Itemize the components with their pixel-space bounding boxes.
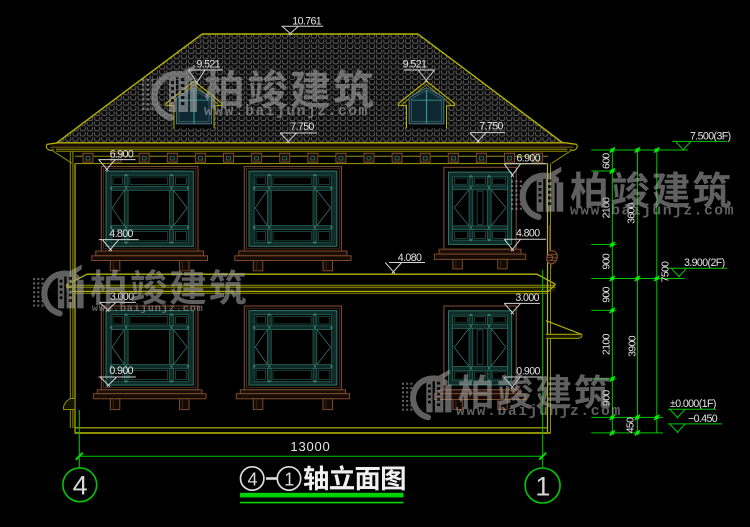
svg-text:3.900(2F): 3.900(2F) bbox=[684, 257, 725, 269]
svg-text:900: 900 bbox=[602, 253, 613, 269]
svg-text:4: 4 bbox=[247, 469, 257, 489]
svg-text:www.baijunjz.com: www.baijunjz.com bbox=[92, 303, 204, 315]
svg-text:3.000: 3.000 bbox=[515, 292, 539, 304]
svg-text:6.900: 6.900 bbox=[110, 148, 134, 160]
svg-text:450: 450 bbox=[625, 417, 636, 433]
svg-text:www.baijunjz.com: www.baijunjz.com bbox=[570, 203, 735, 219]
svg-text:www.baijunjz.com: www.baijunjz.com bbox=[456, 404, 622, 420]
svg-text:13000: 13000 bbox=[290, 439, 330, 454]
svg-text:6.900: 6.900 bbox=[517, 153, 541, 165]
svg-text:600: 600 bbox=[602, 153, 613, 169]
svg-text:900: 900 bbox=[602, 286, 613, 302]
svg-text:0.900: 0.900 bbox=[109, 365, 133, 377]
svg-text:9.521: 9.521 bbox=[403, 59, 427, 71]
svg-text:www.baijunjz.com: www.baijunjz.com bbox=[204, 104, 369, 120]
svg-text:7.500(3F): 7.500(3F) bbox=[690, 130, 731, 142]
svg-text:7500: 7500 bbox=[660, 261, 671, 283]
svg-text:1: 1 bbox=[535, 471, 549, 501]
svg-text:3900: 3900 bbox=[628, 335, 639, 357]
svg-text:2100: 2100 bbox=[602, 333, 613, 355]
svg-text:4: 4 bbox=[73, 471, 88, 501]
svg-text:4.800: 4.800 bbox=[109, 228, 133, 240]
svg-text:1: 1 bbox=[284, 469, 294, 489]
svg-text:−0.450: −0.450 bbox=[688, 413, 718, 425]
svg-text:±0.000(1F): ±0.000(1F) bbox=[670, 398, 716, 410]
svg-text:9.521: 9.521 bbox=[197, 59, 221, 71]
svg-text:10.761: 10.761 bbox=[292, 15, 322, 27]
svg-text:7.750: 7.750 bbox=[479, 120, 503, 132]
svg-text:4.800: 4.800 bbox=[516, 228, 540, 240]
svg-text:7.750: 7.750 bbox=[290, 121, 314, 133]
